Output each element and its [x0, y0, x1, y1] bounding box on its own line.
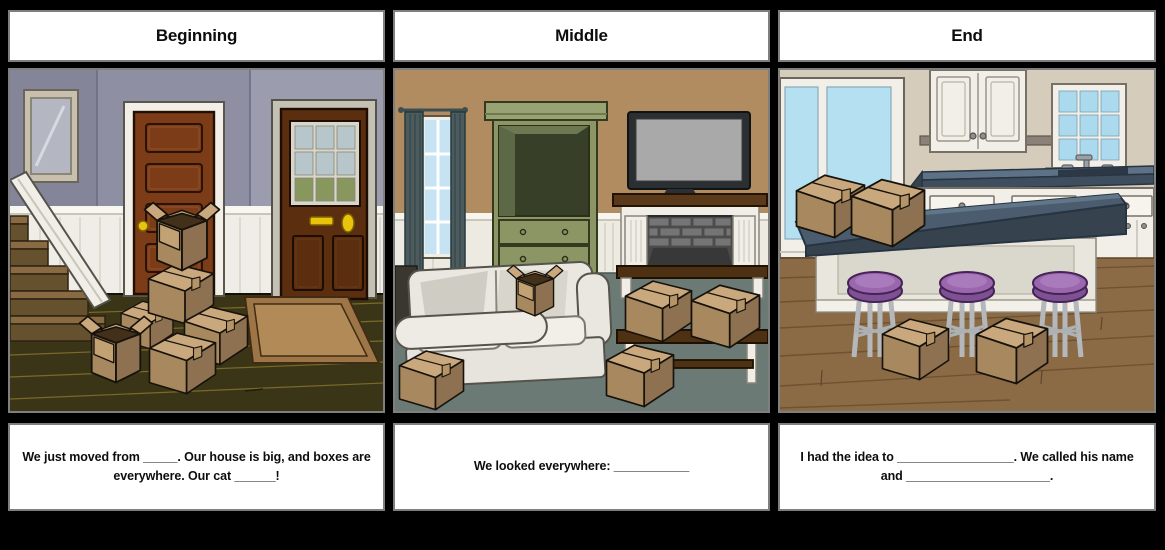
panel-beginning: Beginning: [8, 10, 385, 511]
door-knob: [138, 221, 148, 231]
caption-middle: We looked everywhere: ___________: [393, 423, 770, 511]
panel-title: Middle: [555, 26, 608, 46]
panel-middle: Middle: [393, 10, 770, 511]
caption-beginning: We just moved from _____. Our house is b…: [8, 423, 385, 511]
hallway-illustration: [10, 70, 383, 411]
panel-title: End: [951, 26, 983, 46]
caption-end: I had the idea to _________________. We …: [778, 423, 1156, 511]
mantel: [613, 194, 767, 206]
living-room-illustration: [395, 70, 768, 411]
front-door-knob: [342, 214, 354, 232]
caption-text: I had the idea to _________________. We …: [780, 448, 1154, 487]
panel-title: Beginning: [156, 26, 237, 46]
kitchen-illustration: [780, 70, 1154, 411]
caption-text: We looked everywhere: ___________: [465, 457, 698, 476]
mail-slot: [310, 217, 333, 225]
caption-text: We just moved from _____. Our house is b…: [10, 448, 383, 487]
flat-screen-tv: [628, 112, 750, 197]
fireplace: [613, 194, 767, 268]
curtain-right: [451, 112, 465, 288]
panel-header-end: End: [778, 10, 1156, 62]
panel-header-middle: Middle: [393, 10, 770, 62]
front-door: [272, 100, 376, 299]
wall-mirror: [24, 90, 78, 182]
scene-middle: [393, 68, 770, 413]
panel-end: End: [778, 10, 1156, 511]
panel-header-beginning: Beginning: [8, 10, 385, 62]
scene-end: [778, 68, 1156, 413]
armoire: [485, 102, 607, 278]
upper-cabinet: [930, 70, 1026, 152]
scene-beginning: [8, 68, 385, 413]
storyboard: Beginning: [8, 10, 1156, 511]
